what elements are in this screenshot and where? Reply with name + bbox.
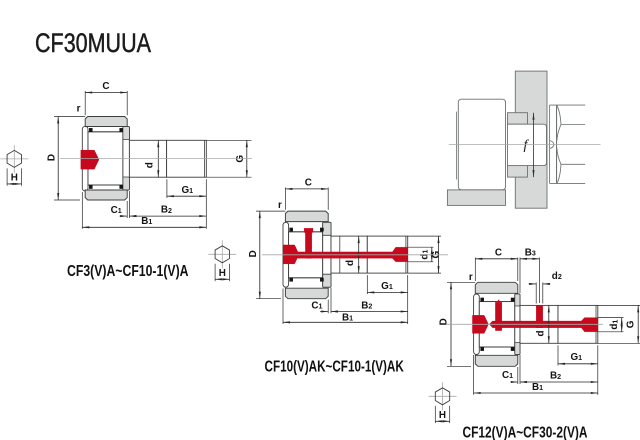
svg-text:d1: d1	[609, 320, 620, 330]
svg-text:r: r	[77, 104, 81, 115]
svg-text:r: r	[278, 200, 282, 211]
svg-text:G1: G1	[181, 185, 193, 196]
svg-text:B2: B2	[161, 205, 172, 216]
svg-text:B3: B3	[525, 247, 536, 258]
svg-text:d2: d2	[552, 271, 562, 282]
svg-text:B2: B2	[361, 300, 372, 311]
svg-text:CF12(V)A~CF30-2(V)A: CF12(V)A~CF30-2(V)A	[463, 424, 588, 440]
svg-text:B1: B1	[342, 312, 353, 323]
svg-text:C: C	[495, 247, 502, 258]
svg-text:C: C	[102, 81, 109, 92]
svg-text:G1: G1	[381, 281, 393, 292]
svg-text:C: C	[305, 177, 312, 188]
svg-text:D: D	[46, 154, 57, 161]
svg-text:D: D	[248, 250, 259, 257]
svg-text:d: d	[145, 162, 156, 168]
svg-text:C1: C1	[502, 370, 513, 381]
svg-text:H: H	[439, 410, 446, 421]
svg-text:r: r	[469, 272, 473, 283]
svg-text:G1: G1	[570, 352, 582, 363]
svg-text:G: G	[626, 320, 637, 328]
svg-text:H: H	[11, 172, 18, 183]
svg-text:d: d	[536, 330, 547, 336]
svg-text:CF10(V)AK~CF10-1(V)AK: CF10(V)AK~CF10-1(V)AK	[265, 358, 405, 375]
svg-text:C1: C1	[111, 205, 122, 216]
svg-text:d: d	[345, 260, 356, 266]
svg-text:CF3(V)A~CF10-1(V)A: CF3(V)A~CF10-1(V)A	[67, 263, 189, 280]
svg-text:B1: B1	[141, 216, 152, 227]
svg-text:C1: C1	[311, 300, 322, 311]
svg-text:B2: B2	[550, 371, 561, 382]
svg-text:CF30MUUA: CF30MUUA	[35, 28, 151, 58]
svg-text:B1: B1	[532, 382, 543, 393]
svg-text:H: H	[219, 268, 226, 279]
